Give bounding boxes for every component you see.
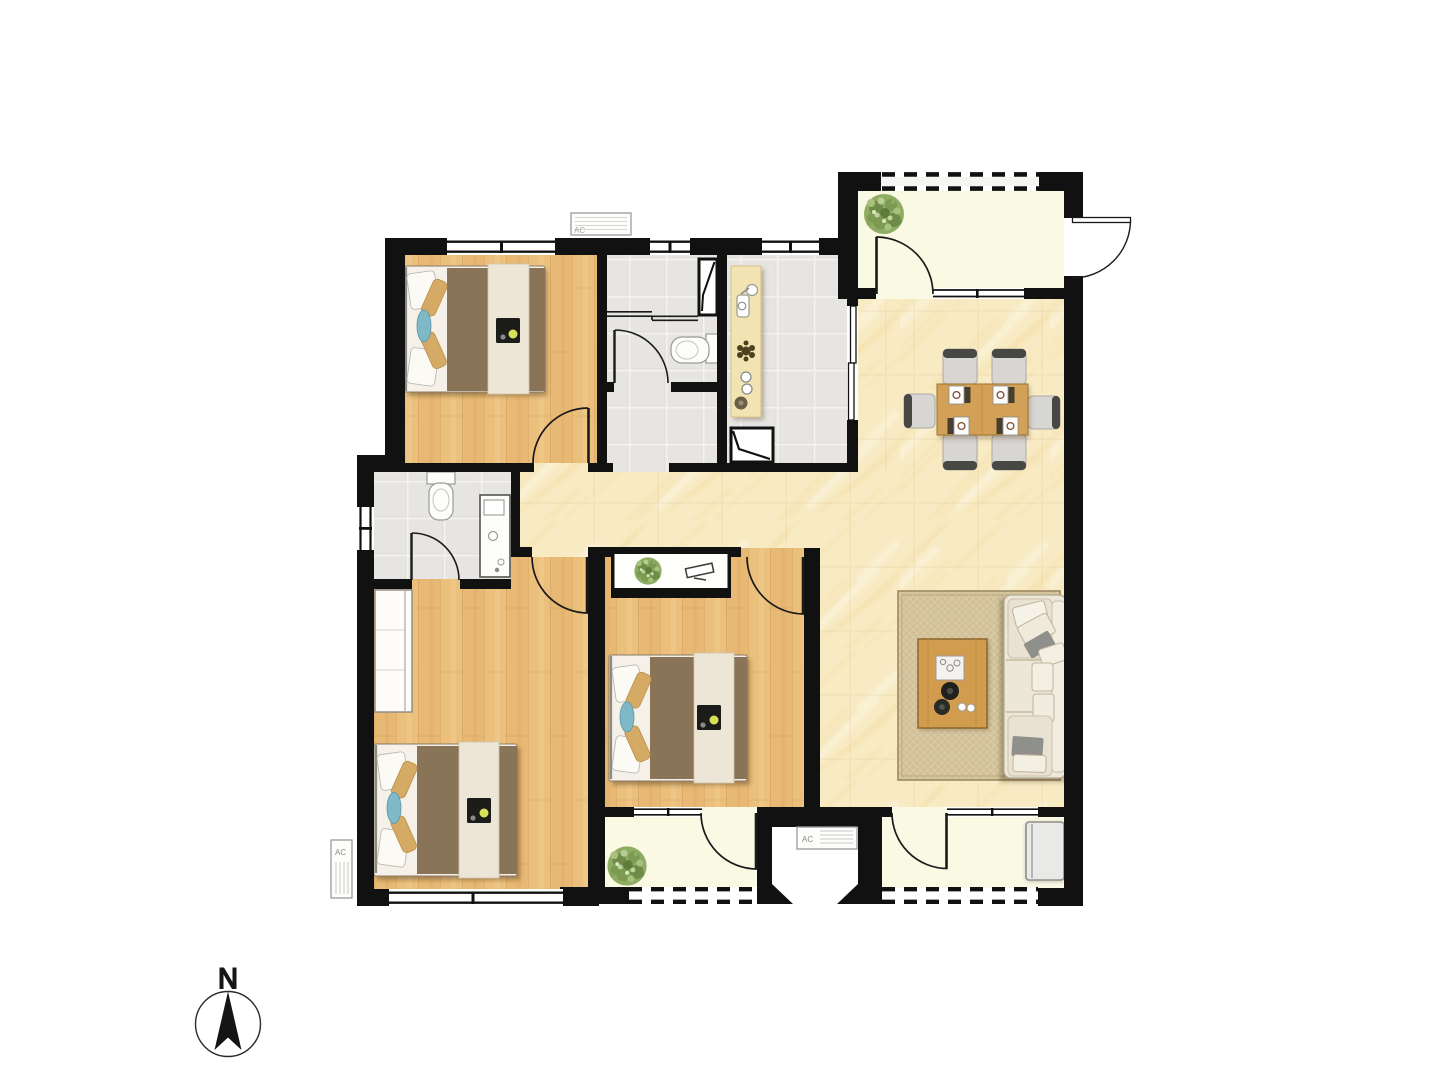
svg-text:AC: AC [802, 835, 813, 844]
svg-text:AC: AC [574, 226, 585, 235]
svg-text:AC: AC [335, 848, 346, 857]
